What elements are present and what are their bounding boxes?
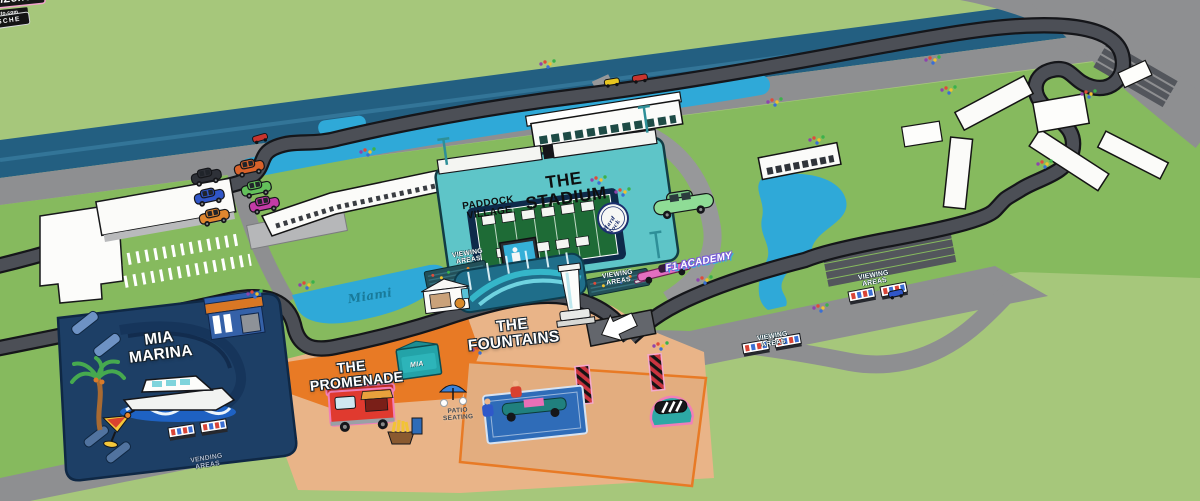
marina-building: [204, 290, 267, 340]
map-illustration: [0, 0, 1200, 501]
cup-icon: [412, 418, 422, 434]
mia-marina-zone: [58, 290, 296, 480]
circuit-fan-map: THE STADIUM PADDOCK VILLAGE MIA MARINA T…: [0, 0, 1200, 501]
drink-icon: [461, 288, 469, 299]
